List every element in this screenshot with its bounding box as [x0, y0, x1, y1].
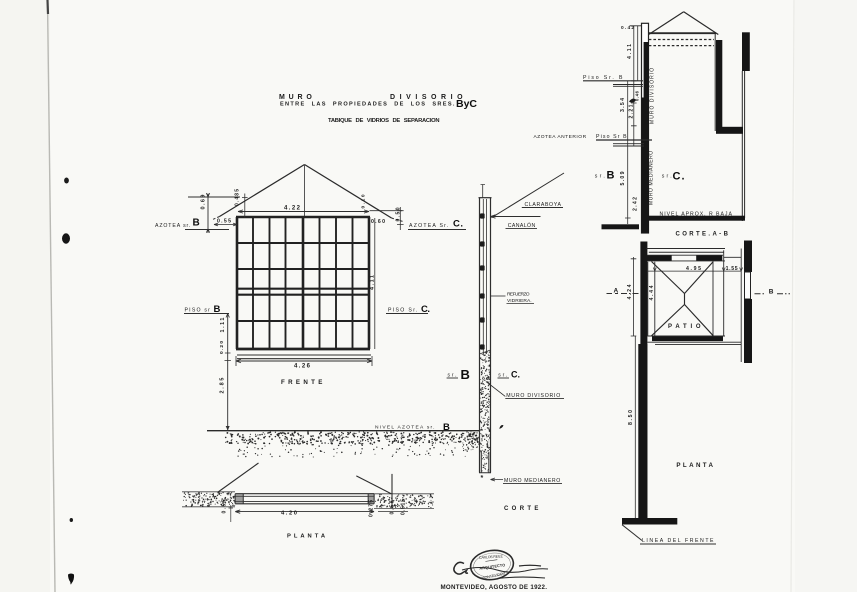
- svg-text:B: B: [193, 218, 200, 229]
- svg-text:4.26: 4.26: [294, 363, 311, 369]
- svg-text:0.55: 0.55: [222, 499, 228, 513]
- svg-text:0.515: 0.515: [401, 499, 407, 515]
- svg-text:4.11: 4.11: [627, 44, 633, 59]
- svg-text:2.85: 2.85: [220, 378, 226, 394]
- svg-text:0.69: 0.69: [201, 195, 207, 210]
- svg-text:1.55: 1.55: [726, 266, 738, 272]
- svg-text:B: B: [769, 288, 774, 295]
- svg-text:4.95: 4.95: [686, 266, 701, 272]
- svg-text:AZOTEA Sr.: AZOTEA Sr.: [409, 223, 449, 229]
- svg-text:2.42: 2.42: [633, 197, 639, 211]
- svg-text:REFUERZO: REFUERZO: [507, 292, 530, 298]
- svg-text:AZOTEA sr.: AZOTEA sr.: [155, 223, 191, 229]
- svg-text:C.: C.: [453, 219, 463, 230]
- svg-text:sr.: sr.: [448, 372, 457, 378]
- svg-text:CANALÓN: CANALÓN: [508, 222, 536, 229]
- svg-text:MURO: MURO: [279, 94, 316, 101]
- svg-text:B: B: [607, 170, 615, 182]
- svg-text:0.20: 0.20: [219, 341, 225, 354]
- svg-text:MURO DIVISORIO: MURO DIVISORIO: [506, 393, 561, 399]
- svg-text:MONTEVIDEO, AGOSTO DE 1922.: MONTEVIDEO, AGOSTO DE 1922.: [441, 584, 548, 591]
- svg-text:B: B: [461, 367, 470, 382]
- svg-text:ByC: ByC: [456, 98, 477, 110]
- svg-text:CORTE.A-B: CORTE.A-B: [676, 232, 731, 238]
- svg-text:LINEA DEL FRENTE: LINEA DEL FRENTE: [642, 538, 714, 544]
- svg-text:sr.: sr.: [595, 174, 605, 180]
- svg-text:4.24: 4.24: [627, 284, 633, 299]
- svg-text:8.50: 8.50: [628, 410, 634, 425]
- svg-text:*: *: [481, 475, 484, 482]
- svg-text:MURO MEDIANERO: MURO MEDIANERO: [649, 150, 655, 205]
- svg-text:1.11: 1.11: [220, 318, 226, 333]
- svg-text:PLANTA: PLANTA: [676, 462, 717, 469]
- svg-text:ENTRE LAS PROPIEDADES DE LOS S: ENTRE LAS PROPIEDADES DE LOS SRES.: [280, 102, 455, 108]
- svg-text:sr.: sr.: [662, 174, 672, 180]
- svg-text:0.55: 0.55: [390, 500, 396, 514]
- svg-text:C.: C.: [673, 171, 685, 183]
- svg-text:0.60: 0.60: [371, 219, 385, 225]
- svg-text:FRENTE: FRENTE: [281, 379, 327, 386]
- svg-text:0.55: 0.55: [217, 219, 231, 225]
- svg-text:PLANTA: PLANTA: [287, 534, 330, 540]
- svg-text:0.46: 0.46: [635, 90, 640, 101]
- svg-text:DIVISORIO: DIVISORIO: [390, 94, 466, 101]
- svg-text:CORTE: CORTE: [504, 506, 542, 512]
- svg-text:PISO sr: PISO sr: [185, 308, 211, 314]
- svg-text:3.54: 3.54: [620, 98, 626, 112]
- svg-text:PATIO: PATIO: [668, 324, 704, 330]
- svg-text:0.10: 0.10: [361, 194, 367, 208]
- svg-text:MURO DIVISORIO: MURO DIVISORIO: [650, 67, 656, 124]
- svg-text:PISO Sr.: PISO Sr.: [388, 308, 418, 314]
- svg-text:NIVEL AZOTEA sr.: NIVEL AZOTEA sr.: [375, 425, 435, 431]
- svg-text:Piso Sr B: Piso Sr B: [596, 134, 627, 140]
- svg-text:5.09: 5.09: [620, 171, 626, 185]
- svg-text:0.485: 0.485: [235, 189, 241, 206]
- svg-text:TABIQUE DE VIDRIOS DE SEPARACI: TABIQUE DE VIDRIOS DE SEPARACION: [328, 118, 440, 124]
- svg-text:4.11: 4.11: [370, 275, 376, 290]
- svg-text:Piso Sr. B: Piso Sr. B: [583, 75, 623, 81]
- svg-text:MURO MEDIANERO: MURO MEDIANERO: [504, 478, 561, 484]
- svg-text:4.44: 4.44: [649, 285, 655, 300]
- svg-text:2.21: 2.21: [629, 104, 635, 118]
- svg-text:B: B: [443, 422, 450, 433]
- svg-text:0.275: 0.275: [369, 500, 375, 517]
- svg-text:C.: C.: [511, 370, 520, 380]
- svg-text:AZOTEA ANTERIOR: AZOTEA ANTERIOR: [534, 134, 587, 140]
- svg-text:0.50: 0.50: [396, 207, 402, 221]
- svg-text:4.20: 4.20: [281, 511, 298, 517]
- svg-text:4.22: 4.22: [284, 206, 301, 212]
